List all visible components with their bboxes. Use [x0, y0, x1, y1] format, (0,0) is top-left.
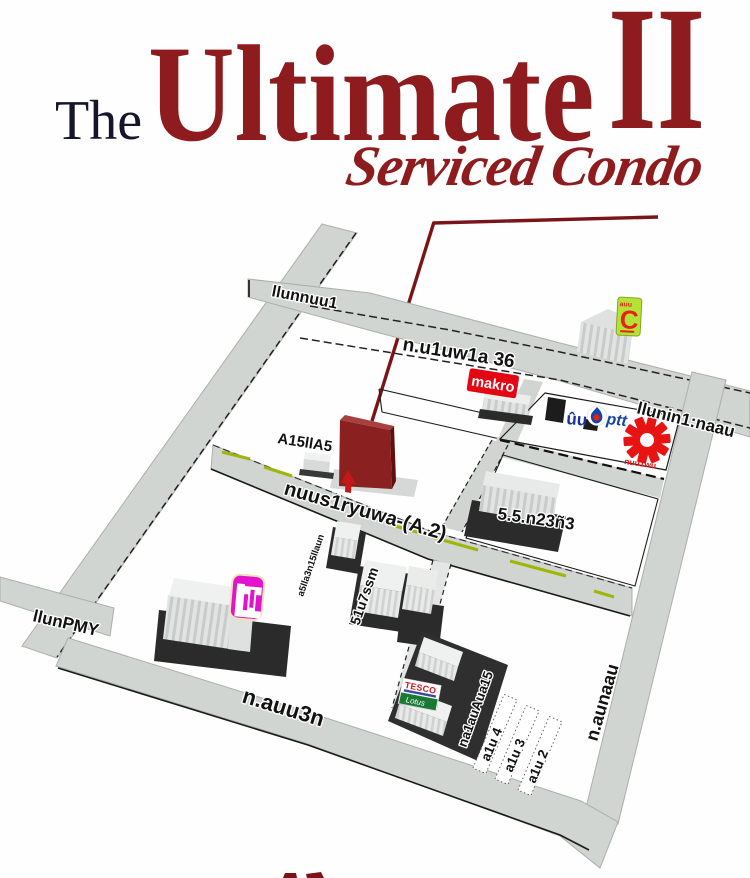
svg-text:ptt: ptt — [605, 411, 629, 430]
svg-text:ûu: ûu — [566, 409, 588, 430]
svg-text:Serviced Condo: Serviced Condo — [342, 135, 708, 198]
svg-text:The: The — [55, 90, 142, 152]
